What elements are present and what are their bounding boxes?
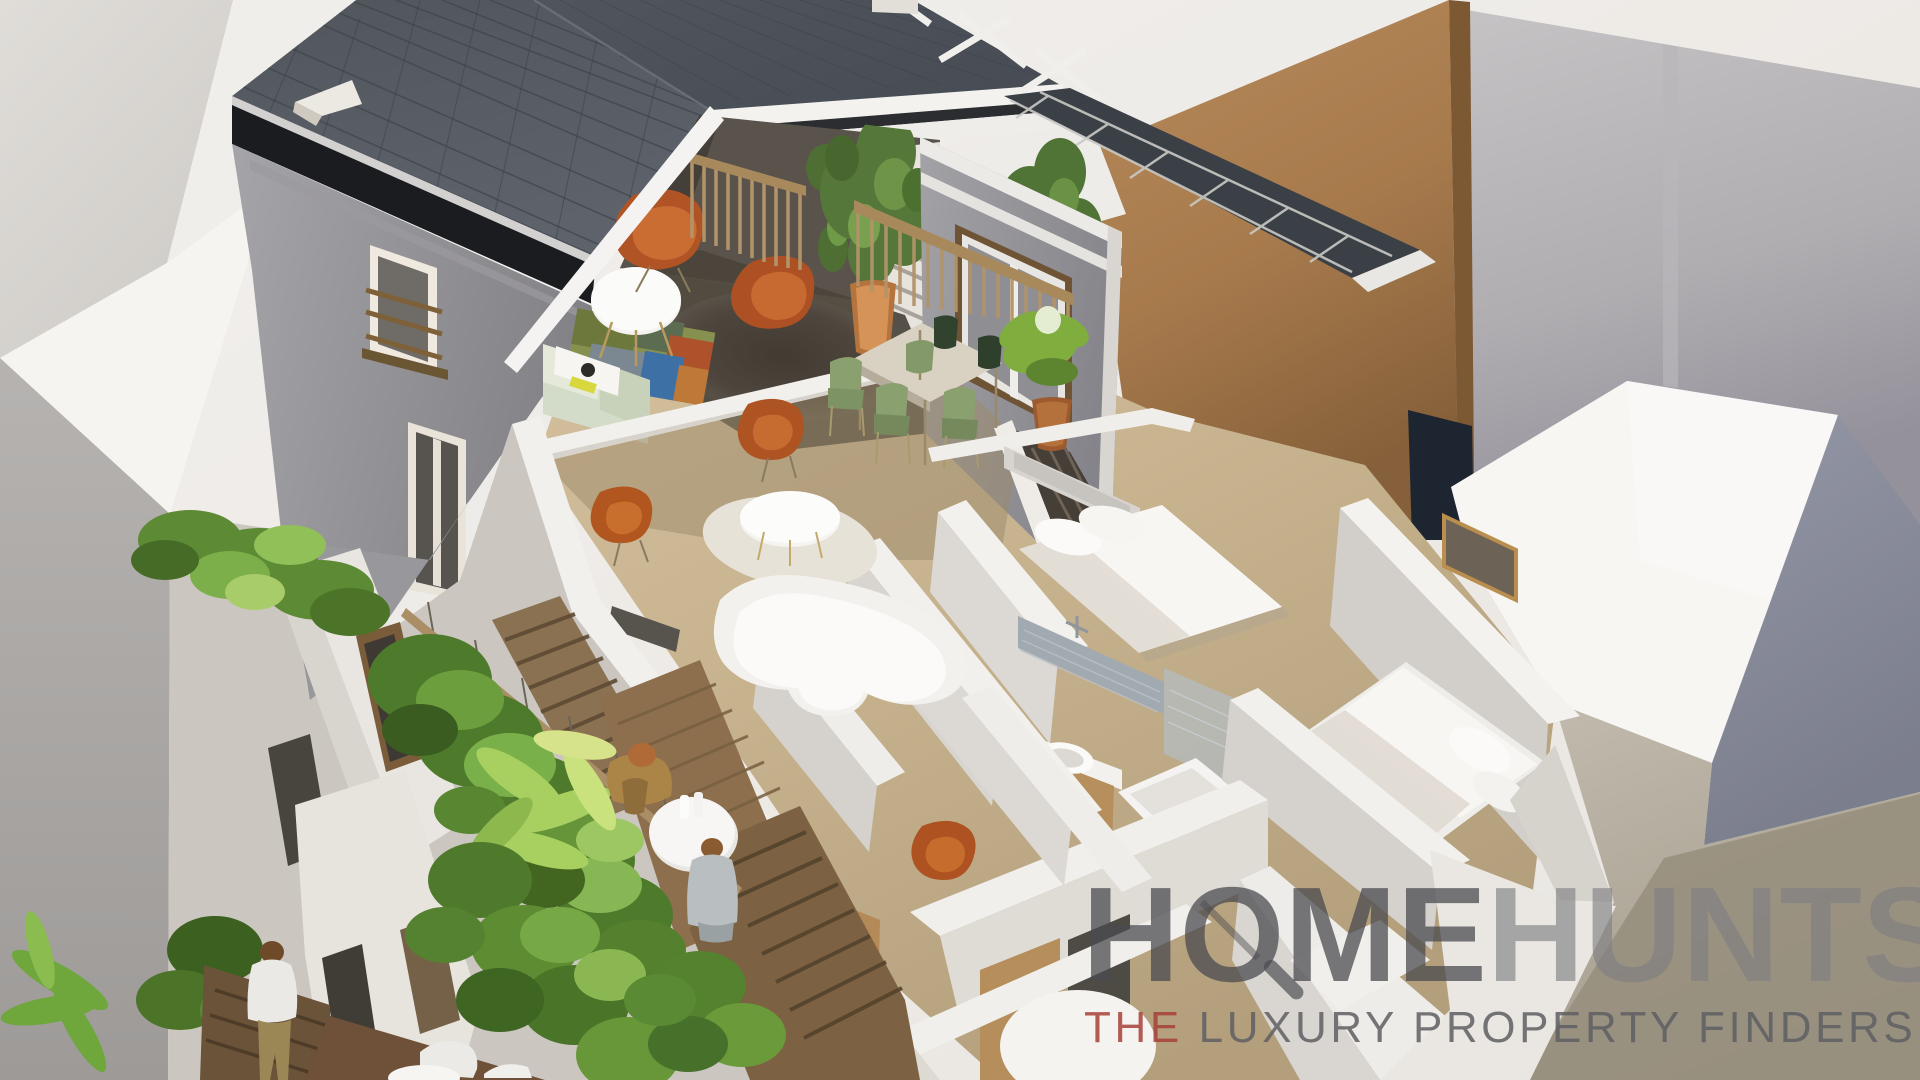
- svg-text:HOMEHUNTS: HOMEHUNTS: [1082, 859, 1920, 1010]
- svg-text:THE LUXURY PROPERTY FINDERS: THE LUXURY PROPERTY FINDERS: [1084, 1003, 1916, 1052]
